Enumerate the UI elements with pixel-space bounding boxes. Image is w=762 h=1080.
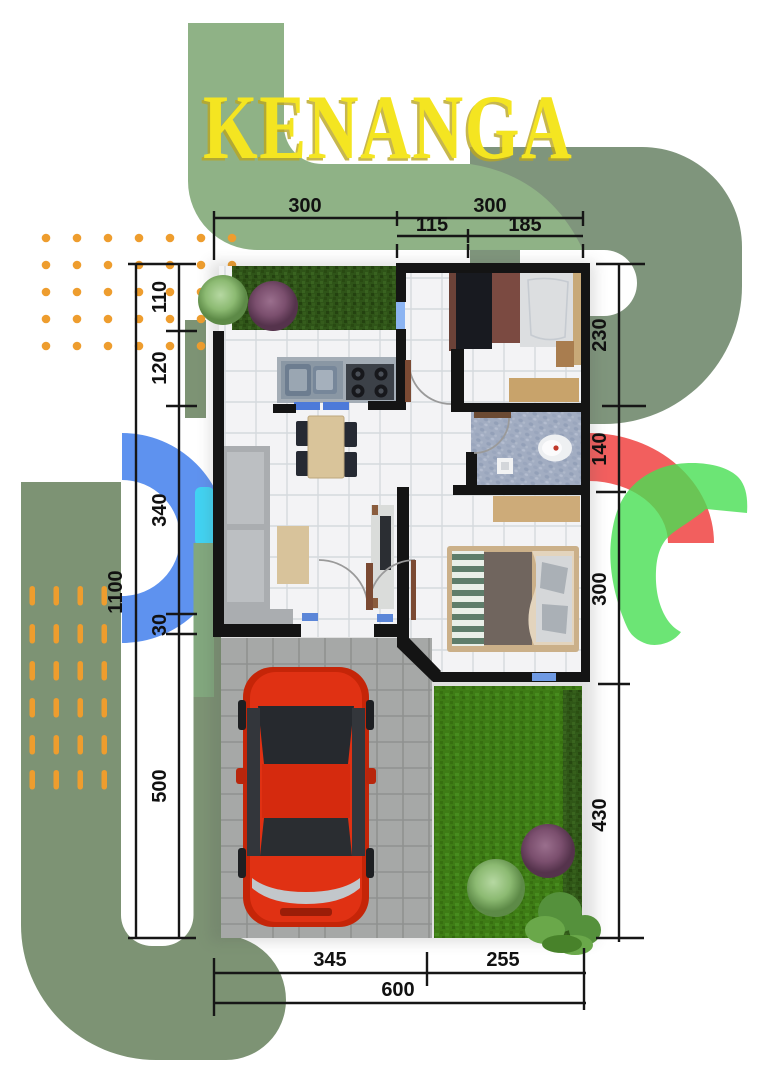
svg-text:345: 345: [313, 949, 346, 971]
svg-text:115: 115: [416, 214, 448, 236]
svg-text:30: 30: [149, 614, 171, 636]
svg-text:KENANGA: KENANGA: [203, 76, 573, 178]
svg-text:230: 230: [589, 318, 611, 351]
svg-text:300: 300: [589, 572, 611, 605]
svg-text:185: 185: [508, 214, 541, 236]
svg-text:255: 255: [486, 949, 519, 971]
svg-text:300: 300: [473, 195, 506, 217]
svg-text:340: 340: [149, 493, 171, 526]
svg-text:1100: 1100: [105, 570, 127, 613]
svg-text:430: 430: [589, 798, 611, 831]
svg-text:300: 300: [288, 195, 321, 217]
svg-text:120: 120: [149, 351, 171, 384]
svg-text:500: 500: [149, 769, 171, 802]
svg-text:600: 600: [381, 979, 414, 1001]
svg-text:140: 140: [589, 432, 611, 465]
svg-text:110: 110: [149, 281, 171, 313]
